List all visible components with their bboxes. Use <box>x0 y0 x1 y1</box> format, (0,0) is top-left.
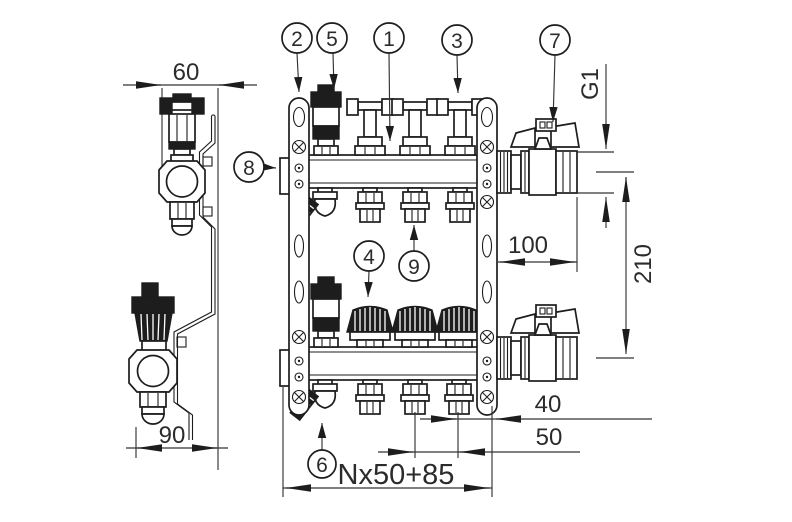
bracket-right <box>477 98 497 415</box>
ball-valve-upper <box>497 119 579 195</box>
outlet-upper-2 <box>401 188 429 222</box>
side-view: 60 <box>123 59 257 470</box>
callout-1-number: 1 <box>383 28 395 51</box>
dim-90: 90 <box>126 422 228 458</box>
flow-valve-2 <box>392 99 438 155</box>
dim-210-label: 210 <box>630 244 657 284</box>
thermostatic-insert-2 <box>392 307 438 348</box>
callout-4: 4 <box>354 241 384 297</box>
thermostatic-insert-3 <box>436 307 482 348</box>
callout-9: 9 <box>399 225 429 281</box>
ball-valve-lower <box>497 305 579 381</box>
callout-8: 8 <box>234 152 276 182</box>
outlet-lower-2 <box>401 380 429 414</box>
manifold-rail-upper <box>280 155 480 194</box>
dim-100-label: 100 <box>508 232 548 259</box>
callout-6: 6 <box>308 423 336 478</box>
manifold-rail-lower <box>280 347 480 386</box>
dim-total-label: Nx50+85 <box>338 459 455 491</box>
dim-50-label: 50 <box>536 424 563 451</box>
air-vent-upper <box>311 85 341 155</box>
callout-7: 7 <box>540 25 570 122</box>
bracket-left <box>289 98 309 415</box>
dim-G1: G1 <box>577 64 614 228</box>
side-valve-upper <box>159 94 205 235</box>
flow-valve-1 <box>347 99 393 155</box>
dim-210: 210 <box>626 177 657 354</box>
flow-valve-3 <box>437 99 483 155</box>
callout-1: 1 <box>374 23 404 141</box>
callout-6-number: 6 <box>316 454 328 477</box>
dim-90-label: 90 <box>159 422 186 449</box>
outlet-upper-3 <box>446 188 474 222</box>
outlet-upper-1 <box>356 188 384 222</box>
outlet-lower-3 <box>445 380 473 414</box>
dim-40-label: 40 <box>535 391 562 418</box>
outlet-lower-1 <box>356 380 384 414</box>
callout-2-number: 2 <box>291 28 303 51</box>
callout-5-number: 5 <box>326 28 338 51</box>
callout-3-number: 3 <box>451 30 463 53</box>
side-valve-lower <box>129 283 177 424</box>
air-vent-lower <box>311 277 341 347</box>
dim-60-label: 60 <box>173 59 200 86</box>
callout-7-number: 7 <box>549 30 561 53</box>
dim-G1-label: G1 <box>577 68 604 100</box>
callout-8-number: 8 <box>243 157 255 180</box>
dim-100: 100 <box>498 197 577 272</box>
callout-4-number: 4 <box>363 246 375 269</box>
callout-5: 5 <box>317 23 347 89</box>
drawing-page: 60 <box>0 0 792 522</box>
callout-3: 3 <box>442 25 472 93</box>
manifold-technical-drawing: 60 <box>0 0 792 522</box>
callout-2: 2 <box>282 23 312 92</box>
callout-9-number: 9 <box>408 256 420 279</box>
thermostatic-insert-1 <box>347 307 393 348</box>
front-view: G1 100 210 40 <box>234 23 657 497</box>
